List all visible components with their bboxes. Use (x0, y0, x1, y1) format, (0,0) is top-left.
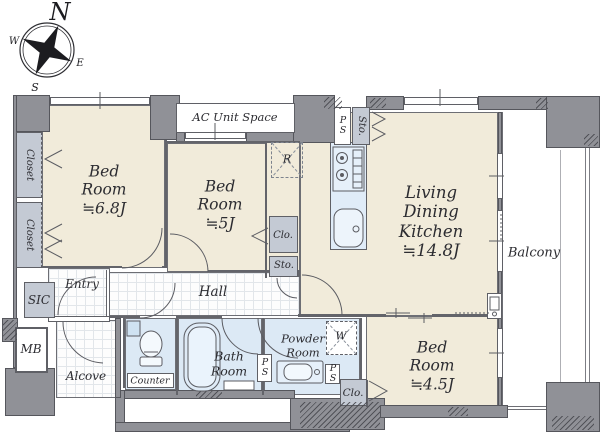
label-ac-unit-space: AC Unit Space (192, 111, 277, 125)
compass-east-label: E (75, 58, 84, 69)
balcony-railing-line (560, 150, 561, 408)
window (497, 153, 503, 199)
label-ps-powder: PS (328, 364, 338, 384)
wall (123, 318, 125, 388)
compass-west-label: W (9, 36, 20, 47)
wall-hatch (300, 402, 380, 428)
wall-hatch (370, 98, 386, 108)
label-sic: SIC (28, 293, 50, 307)
label-washer: W (335, 331, 346, 344)
wall (5, 368, 55, 416)
label-mb: MB (20, 342, 41, 356)
wall (265, 143, 267, 278)
label-storage-top: Sto. (355, 116, 367, 136)
entry-door-sill (48, 316, 110, 322)
label-closet-mid: Clo. (273, 230, 293, 242)
label-counter: Counter (130, 375, 169, 386)
wall (176, 318, 178, 395)
wall (16, 95, 50, 132)
balcony-bottom-line (502, 406, 546, 410)
compass: N W E S (4, 0, 96, 96)
floor-plan: N W E S Bed Room ≒6.8J Bed Room ≒5J Livi… (0, 0, 600, 437)
window (50, 97, 150, 105)
label-bedroom-main: Bed Room ≒6.8J (75, 163, 133, 218)
wall (298, 314, 386, 317)
room-alcove (56, 320, 118, 398)
wall-hatch (196, 391, 222, 398)
compass-south-label: S (31, 81, 39, 94)
room-entry (48, 268, 110, 318)
label-closet-lower: Closet (23, 219, 35, 251)
wall (360, 318, 362, 380)
label-storage-mid: Sto. (274, 260, 294, 272)
wall-hatch (324, 97, 342, 109)
compass-needle (11, 14, 83, 86)
label-closet-upper: Closet (23, 149, 35, 181)
label-bedroom-mid: Bed Room ≒5J (191, 178, 249, 233)
label-hall: Hall (199, 285, 227, 301)
label-fridge: R (283, 154, 291, 167)
wall (176, 316, 222, 318)
wall-hatch (552, 416, 594, 430)
window (497, 328, 503, 378)
entry-hall-divider (106, 270, 110, 316)
label-bath: Bath Room (207, 349, 251, 379)
compass-north-label: N (49, 0, 72, 26)
label-ldk: Living Dining Kitchen ≒14.8J (397, 183, 465, 261)
wall-hatch (3, 320, 17, 340)
wall-hatch (536, 98, 548, 109)
wall (298, 272, 300, 277)
wall (115, 318, 121, 398)
wall-hatch (584, 134, 598, 146)
label-bedroom-small: Bed Room ≒4.5J (403, 339, 461, 394)
label-alcove: Alcove (66, 369, 106, 383)
label-ps-top: PS (338, 116, 348, 136)
label-balcony: Balcony (508, 245, 560, 260)
wall-hatch (448, 407, 468, 416)
window (497, 210, 503, 272)
wall (165, 140, 167, 268)
label-powder: Powder Room (278, 332, 328, 359)
kitchen-counter (330, 142, 367, 250)
balcony-outer-rail (585, 148, 590, 382)
label-ps-bath: PS (260, 358, 270, 378)
label-entry: Entry (65, 277, 99, 291)
label-closet-small: Clo. (343, 387, 364, 399)
window (404, 97, 478, 105)
wall (380, 405, 508, 418)
balcony-fixture (487, 293, 502, 319)
